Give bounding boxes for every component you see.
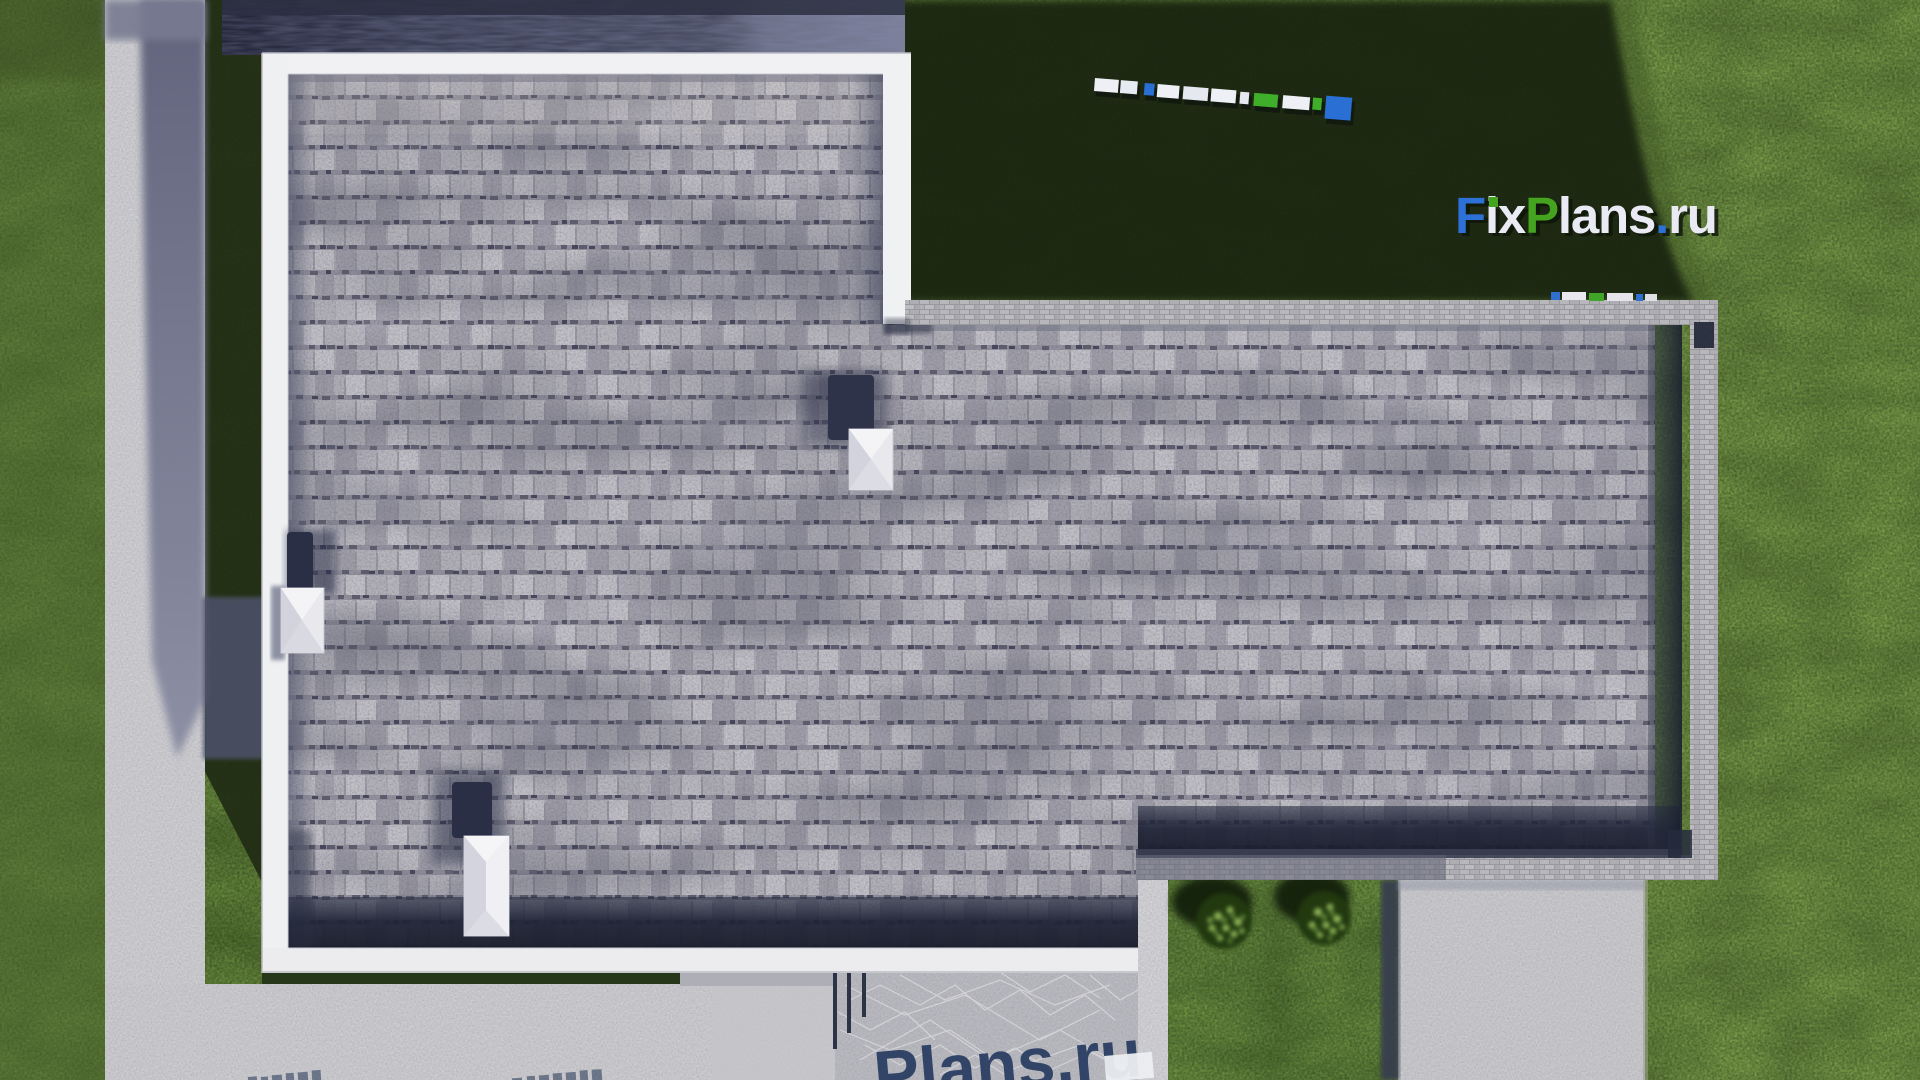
svg-text:FixPlans.ru: FixPlans.ru	[1455, 187, 1717, 244]
